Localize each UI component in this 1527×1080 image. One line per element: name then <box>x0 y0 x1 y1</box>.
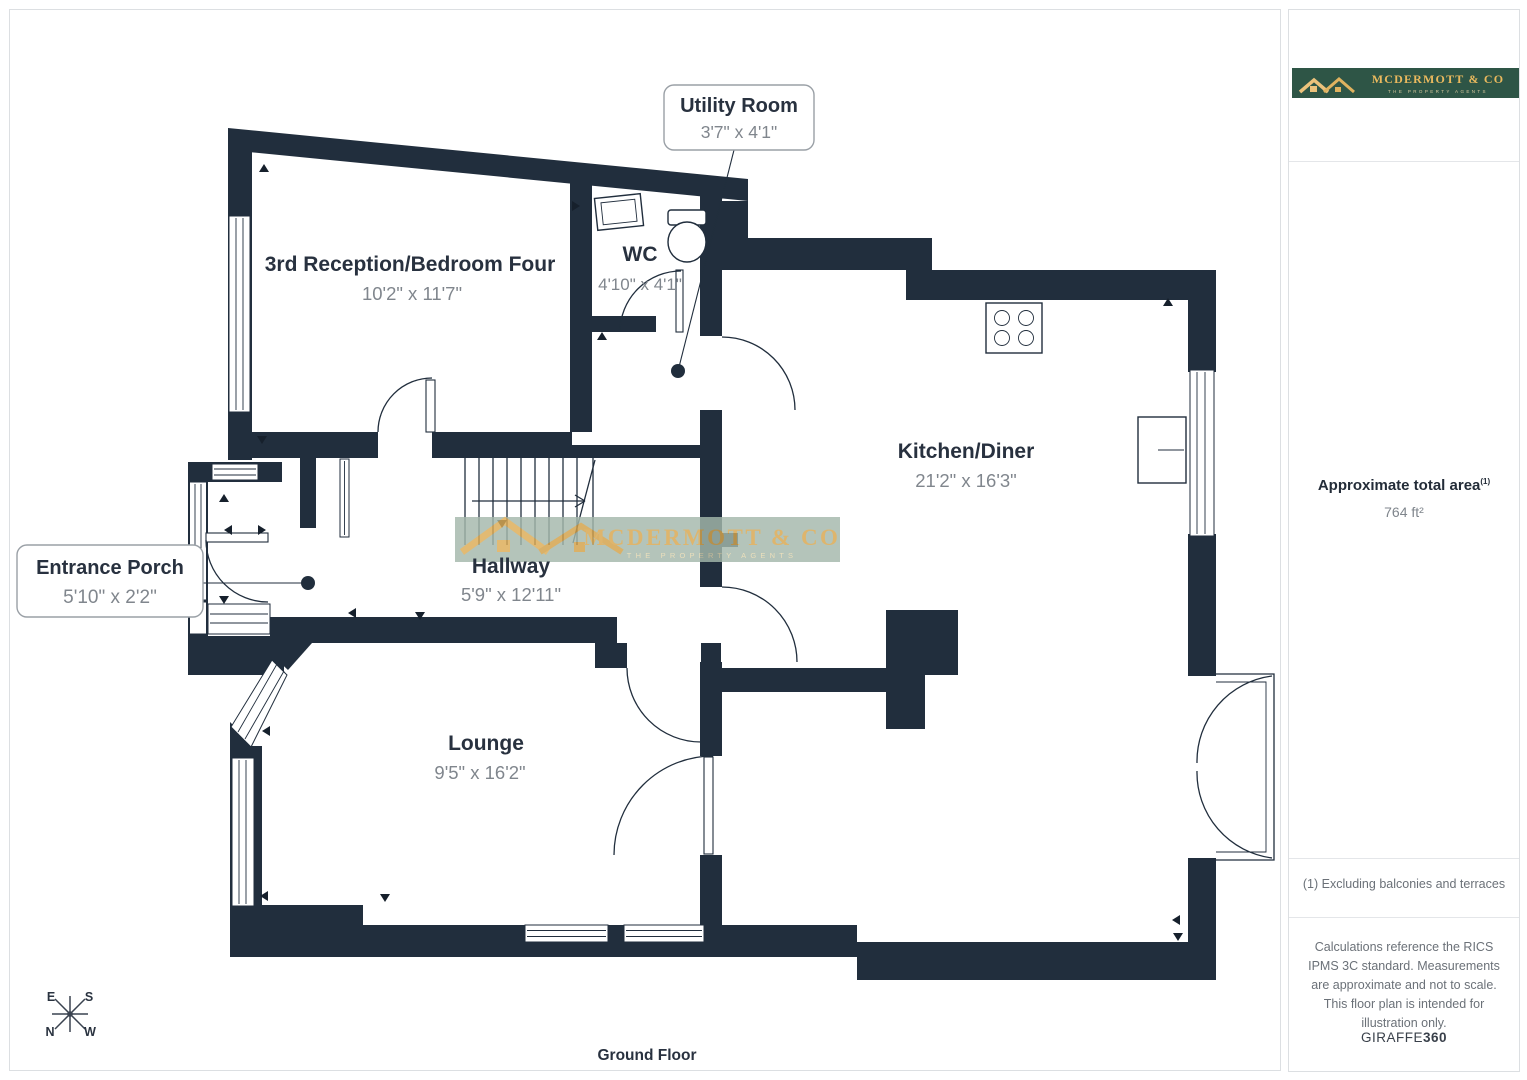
doors <box>206 270 1272 858</box>
area-footnote: (1) Excluding balconies and terraces <box>1289 877 1519 891</box>
callout-porch-name: Entrance Porch <box>36 557 184 579</box>
room-dims-lounge: 9'5" x 16'2" <box>434 762 525 783</box>
utility-sink <box>594 194 643 231</box>
porch-door-arc <box>206 540 268 602</box>
callout-porch-dims: 5'10" x 2'2" <box>63 587 157 608</box>
watermark-tagline: THE PROPERTY AGENTS <box>627 551 797 560</box>
floor-title: Ground Floor <box>597 1047 696 1064</box>
compass: E S N W <box>45 990 96 1039</box>
utility-door-arc <box>722 337 795 410</box>
room-name-reception: 3rd Reception/Bedroom Four <box>265 253 556 276</box>
room-name-kitchen: Kitchen/Diner <box>898 440 1035 463</box>
agency-logo: MCDERMOTT & CO THE PROPERTY AGENTS <box>1292 68 1519 98</box>
agency-roofs-icon <box>1297 70 1359 96</box>
reception-door-arc <box>378 378 432 432</box>
lounge-kitchen-door-leaf <box>704 757 713 854</box>
giraffe360-brand: GIRAFFE360 <box>1289 1030 1519 1045</box>
room-name-lounge: Lounge <box>448 732 524 755</box>
floorplan-page: MCDERMOTT & CO THE PROPERTY AGENTS 3rd R… <box>0 0 1527 1080</box>
chimney-block <box>886 610 958 729</box>
total-area-value: 764 ft² <box>1289 504 1519 520</box>
lounge-kitchen-door-arc <box>614 756 713 855</box>
callout-utility-name: Utility Room <box>680 95 798 117</box>
total-area-label: Approximate total area(1) <box>1289 477 1519 494</box>
fixtures <box>594 194 1186 483</box>
compass-s: S <box>85 990 93 1004</box>
windows <box>190 216 1275 942</box>
hall-kitchen-door-arc <box>722 587 797 662</box>
room-name-hallway: Hallway <box>472 555 551 578</box>
french-door-bottom-arc <box>1197 771 1272 858</box>
room-dims-hallway: 5'9" x 12'11" <box>461 584 561 605</box>
callout-utility-dims: 3'7" x 4'1" <box>701 122 778 142</box>
room-dims-reception: 10'2" x 11'7" <box>362 283 462 304</box>
reception-door-leaf <box>426 380 435 432</box>
info-sidebar: MCDERMOTT & CO THE PROPERTY AGENTS Appro… <box>1288 9 1520 1072</box>
french-door-top-arc <box>1197 676 1272 763</box>
room-name-wc: WC <box>623 243 658 266</box>
agency-tagline: THE PROPERTY AGENTS <box>1365 89 1511 94</box>
compass-w: W <box>84 1025 96 1039</box>
total-area-block: Approximate total area(1) 764 ft² <box>1289 477 1519 520</box>
agency-name: MCDERMOTT & CO <box>1365 72 1511 87</box>
kitchen-unit <box>1138 417 1186 483</box>
kitchen-hob <box>986 303 1042 353</box>
sidebar-divider <box>1289 161 1519 162</box>
room-dims-wc: 4'10" x 4'1" <box>598 275 682 294</box>
watermark-name: MCDERMOTT & CO <box>584 525 841 550</box>
compass-n: N <box>45 1025 54 1039</box>
lounge-door-arc <box>627 668 701 742</box>
footnote-marker: (1) <box>1480 477 1490 486</box>
disclaimer-text: Calculations reference the RICS IPMS 3C … <box>1300 938 1508 1033</box>
sidebar-divider <box>1289 917 1519 918</box>
wc-toilet <box>668 210 706 262</box>
compass-e: E <box>47 990 55 1004</box>
room-dims-kitchen: 21'2" x 16'3" <box>915 470 1016 491</box>
sidebar-divider <box>1289 858 1519 859</box>
